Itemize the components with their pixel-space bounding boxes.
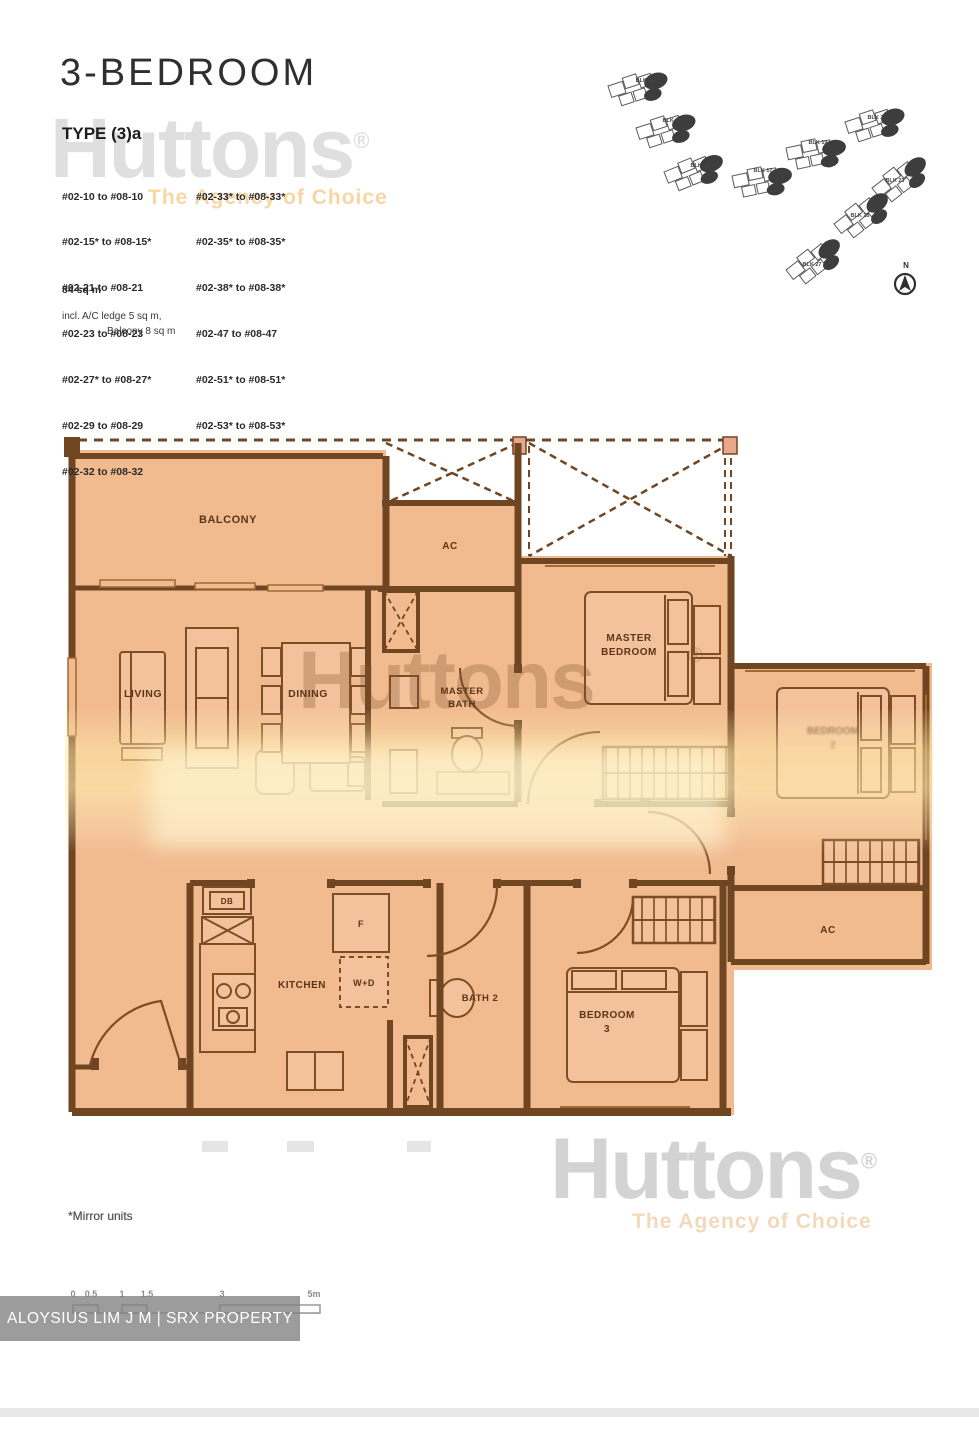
bedroom2-wardrobe [823,840,919,884]
bedroom2-label: BEDROOM 2 [807,726,859,751]
bedside-table [891,696,915,744]
bedroom3-wardrobe [633,897,715,943]
bedroom3-bed [567,968,679,1082]
registered-mark: ® [861,1148,875,1173]
balcony-label: BALCONY [199,514,257,526]
scale-tick: 5m [307,1289,320,1299]
coffee-table [256,750,294,794]
registered-mark: ® [688,645,703,667]
wd-label: W+D [353,978,375,988]
agent-watermark-banner: ALOYSIUS LIM J M | SRX PROPERTY [0,1296,300,1341]
ac-lower-label: AC [820,925,835,936]
vanity [390,676,418,708]
fridge [333,894,389,952]
svg-text:3: 3 [604,1024,610,1035]
area-note-line1: incl. A/C ledge 5 sq m, [62,311,162,322]
registered-mark: ® [353,128,367,153]
site-plan: BLK 11 BLK 15 BLK 13 BLK 17 BLK 19 BLK 2… [607,65,936,294]
db-label: DB [221,897,234,906]
unit-range: #02-29 to #08-29 [62,419,151,434]
dining-table [282,643,350,763]
pillar [513,437,526,454]
room-labels: BALCONY AC LIVING DINING MASTER BATH MAS… [124,514,836,1035]
toilet-bowl [440,979,474,1017]
bath2-label: BATH 2 [462,993,499,1004]
pillar [723,437,737,454]
room-fills [72,450,932,1115]
page-title: 3-BEDROOM [60,52,317,95]
site-block-label: BLK 21 [868,115,887,121]
washer-dryer-box [340,957,388,1007]
svg-text:BATH: BATH [448,699,476,710]
unit-area: 84 sq m [62,284,101,296]
duct-box [202,917,253,944]
master-bath-door-arc [460,668,518,726]
fridge-label: F [358,919,364,929]
site-block-label: BLK 19 [809,140,828,146]
bedroom3-label: BEDROOM [579,1010,635,1021]
pillow [622,971,666,989]
unit-range: #02-35* to #08-35* [196,235,285,250]
entry-door-arc [90,1001,181,1065]
sofa [120,652,165,744]
pillow [668,652,688,696]
door-stops [91,664,735,1070]
pillow [572,971,616,989]
unit-range: #02-51* to #08-51* [196,373,285,388]
master-door-arc [528,732,600,804]
bath-counter [437,772,509,794]
bedside-table [694,658,720,704]
dining-chair [262,724,281,752]
svg-text:BEDROOM: BEDROOM [807,726,859,737]
north-arrow-icon: N [895,261,915,294]
svg-text:BEDROOM: BEDROOM [601,647,657,658]
ac-upper-label: AC [442,541,457,552]
pillow [668,600,688,644]
bedside-table [891,748,915,792]
unit-range: #02-47 to #08-47 [196,327,285,342]
dining-chair [262,686,281,714]
dashed-voids [78,440,731,556]
master-wardrobe [603,747,729,799]
bedside-table [694,606,720,654]
door-arcs [90,668,710,1065]
huttons-tagline-bottom: The Agency of Choice [632,1210,872,1234]
furniture [120,592,919,1090]
floorplan-page: Huttons® The Agency of Choice Huttons® T… [0,0,979,1440]
site-block-label: BLK 27 [803,262,822,268]
dining-chair [351,724,370,752]
site-block-label: BLK 13 [691,163,710,169]
bedroom2-door-arc [648,812,710,874]
huttons-watermark-mid: Huttons [298,635,594,726]
dining-chair [351,648,370,676]
bath2-door-arc [427,886,497,956]
unit-range: #02-53* to #08-53* [196,419,285,434]
svg-text:2: 2 [830,740,836,751]
pillow [861,748,881,792]
bedroom3-door-arc [577,897,633,953]
unit-range: #02-10 to #08-10 [62,190,151,205]
master-bath-label: MASTER [440,686,483,697]
site-block-label: BLK 11 [636,78,655,84]
dimension-stubs [202,1141,431,1152]
north-label: N [903,261,909,270]
site-block-label: BLK 23 [886,178,905,184]
dining-chair [262,648,281,676]
unit-range: #02-38* to #08-38* [196,281,285,296]
dining-chair [351,686,370,714]
windows [68,566,926,1107]
bench [310,757,364,791]
kitchen-island [287,1052,343,1090]
type-label: TYPE (3)a [62,124,141,144]
unit-range: #02-27* to #08-27* [62,373,151,388]
master-bed [585,592,692,704]
floor-plan: Huttons ® BEDROOM 2 BALCONY AC LIVING DI… [64,437,933,1152]
highlight-band [65,710,933,852]
db-box [203,887,251,914]
pillow [861,696,881,740]
kitchen-label: KITCHEN [278,980,326,991]
service-shafts [384,591,431,1107]
site-block-label: BLK 17 [754,168,773,174]
unit-range: #02-15* to #08-15* [62,235,151,250]
toilet-tank [430,980,442,1016]
toilet-bowl [452,736,482,772]
stove [213,974,255,1030]
unit-list-column-2: #02-33* to #08-33* #02-35* to #08-35* #0… [196,159,285,465]
master-bedroom-label: MASTER [606,633,652,644]
unit-range: #02-33* to #08-33* [196,190,285,205]
area-note-line2: Balcony 8 sq m [107,326,175,337]
toilet-tank [452,728,482,738]
huttons-watermark-bottom-text: Huttons [550,1121,861,1217]
tv-console [186,628,238,768]
living-label: LIVING [124,688,162,700]
kitchen-counter [200,944,255,1052]
mirror-units-note: *Mirror units [68,1209,133,1223]
bedside-table [681,972,707,1026]
bedroom2-bed [777,688,889,798]
site-block-label: BLK 15 [663,118,682,124]
shower [390,750,417,793]
bedside-table [681,1030,707,1080]
site-block-label: BLK 25 [851,213,870,219]
walls [72,437,926,1112]
bottom-divider [0,1408,979,1417]
huttons-watermark-bottom: Huttons® [550,1120,875,1219]
unit-range: #02-32 to #08-32 [62,465,151,480]
ottoman [122,748,162,760]
dining-label: DINING [288,688,328,700]
